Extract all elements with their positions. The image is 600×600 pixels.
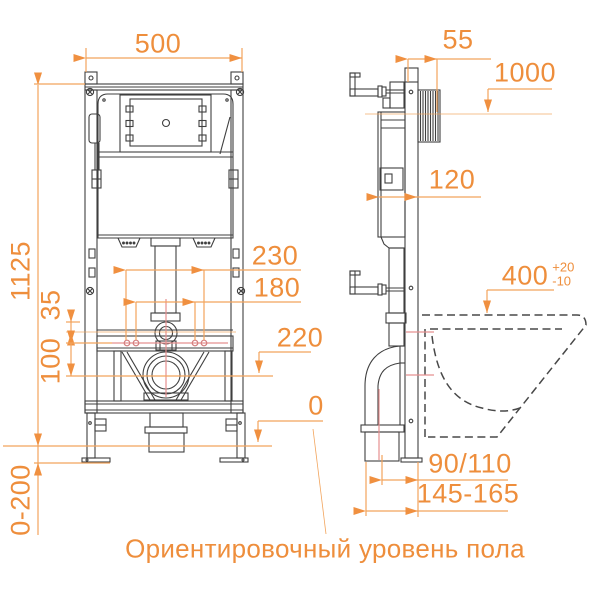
cistern-front [98, 94, 233, 238]
wall-bracket-bottom [350, 271, 405, 295]
dim-400-label: 400+20-10 [502, 263, 575, 292]
floor-caption-leader [313, 429, 326, 534]
dim-1000-leader [488, 89, 552, 112]
dim-145-165-label: 145-165 [417, 481, 520, 508]
dim-400-tol-plus: +20 [552, 261, 574, 275]
dim-1000-label: 1000 [494, 60, 556, 87]
frame-rails [85, 90, 245, 413]
installation-frame-drawing: 500 55 1000 120 1125 230 180 35 100 220 … [0, 0, 600, 600]
dim-1125-label: 1125 [8, 241, 35, 301]
toilet-bowl-dashed [422, 315, 586, 437]
dim-0-200-label: 0-200 [8, 464, 35, 536]
frame-bottom-bar [85, 401, 243, 413]
dim-1125-lines [34, 84, 85, 446]
dim-180-label: 180 [254, 275, 301, 302]
dim-35-lines [66, 310, 80, 345]
front-view [82, 72, 248, 462]
drain-elbow [361, 346, 405, 461]
flush-plate-window [120, 95, 211, 152]
wall-bracket-top [350, 73, 405, 97]
dim-400-tol-minus: -10 [552, 275, 574, 289]
dim-220-leader [259, 352, 311, 373]
dim-0-label: 0 [308, 393, 324, 420]
dim-90-110-label: 90/110 [428, 451, 512, 478]
dim-35-label: 35 [38, 289, 65, 320]
dim-0-200-lines [34, 446, 110, 535]
flush-pipe-side [386, 248, 406, 346]
dim-220-label: 220 [277, 325, 324, 352]
adjustable-legs [82, 413, 248, 462]
frame-top-bar [85, 72, 244, 96]
dim-100-label: 100 [38, 338, 65, 385]
dim-400-leader [487, 290, 554, 313]
dim-230-label: 230 [252, 243, 299, 270]
dim-500-label: 500 [135, 31, 182, 58]
cistern-side [378, 82, 405, 248]
dim-400-value: 400 [502, 261, 549, 291]
dim-120-label: 120 [429, 167, 476, 194]
floor-level-caption: Ориентировочный уровень пола [125, 534, 525, 565]
dim-55-label: 55 [442, 27, 473, 54]
